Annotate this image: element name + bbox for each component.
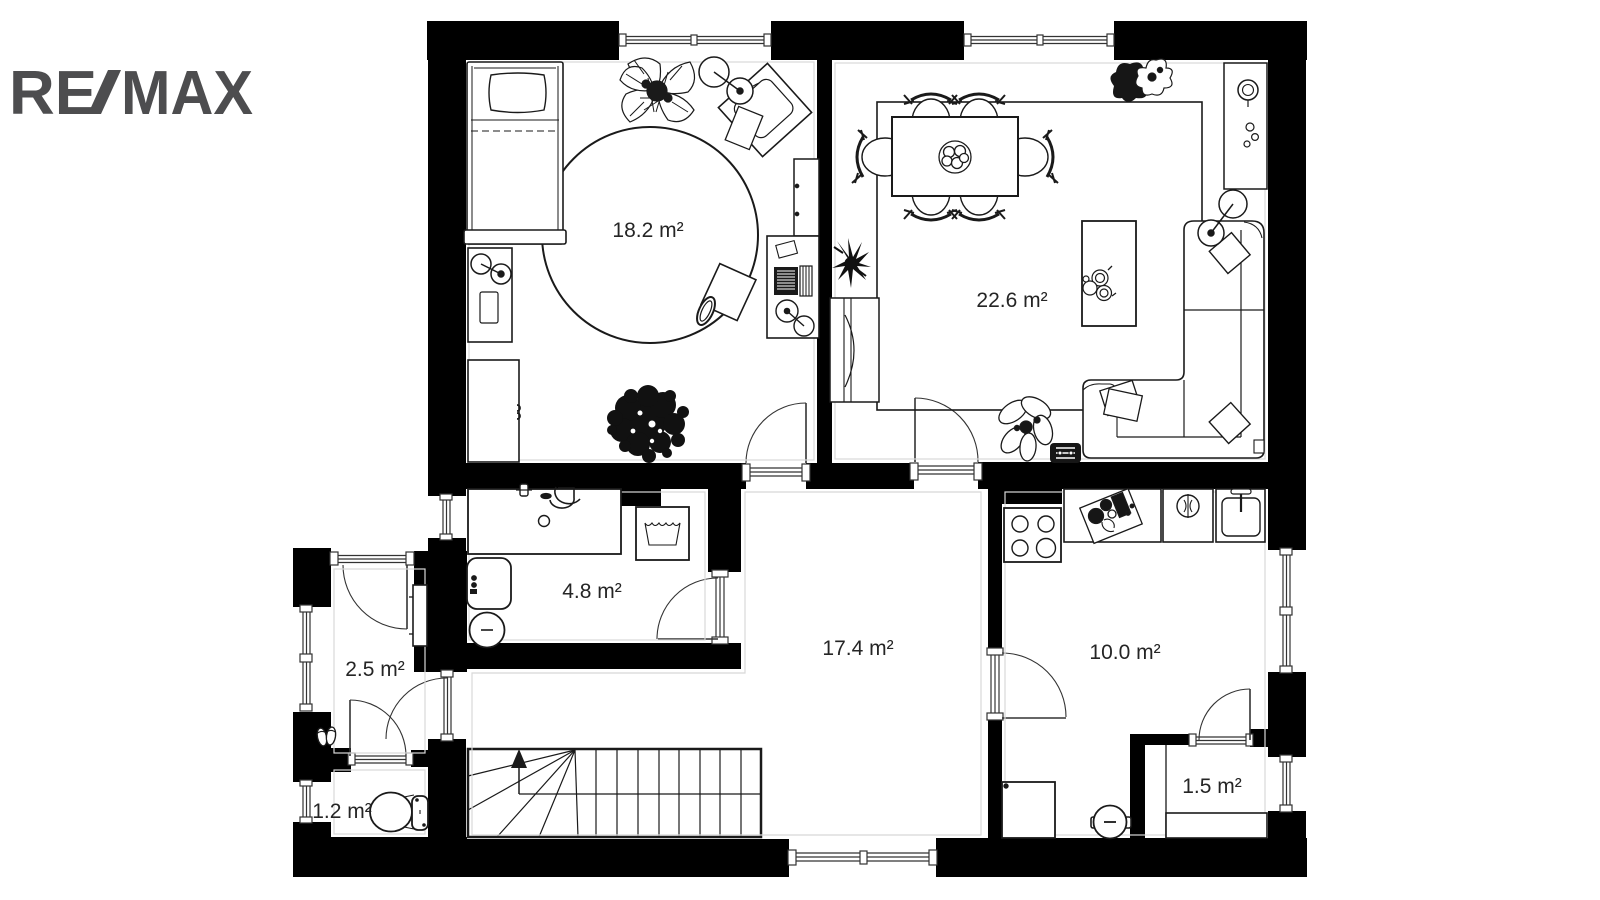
svg-text:1.5 m²: 1.5 m² [1182,775,1242,798]
svg-text:MAX: MAX [121,59,253,128]
svg-text:17.4 m²: 17.4 m² [822,637,893,660]
svg-text:2.5 m²: 2.5 m² [345,658,405,681]
svg-text:10.0 m²: 10.0 m² [1089,641,1160,664]
svg-text:RE: RE [9,59,97,128]
svg-text:1.2 m²: 1.2 m² [312,800,372,823]
svg-text:22.6 m²: 22.6 m² [976,289,1047,312]
svg-text:4.8 m²: 4.8 m² [562,580,622,603]
svg-text:18.2 m²: 18.2 m² [612,219,683,242]
